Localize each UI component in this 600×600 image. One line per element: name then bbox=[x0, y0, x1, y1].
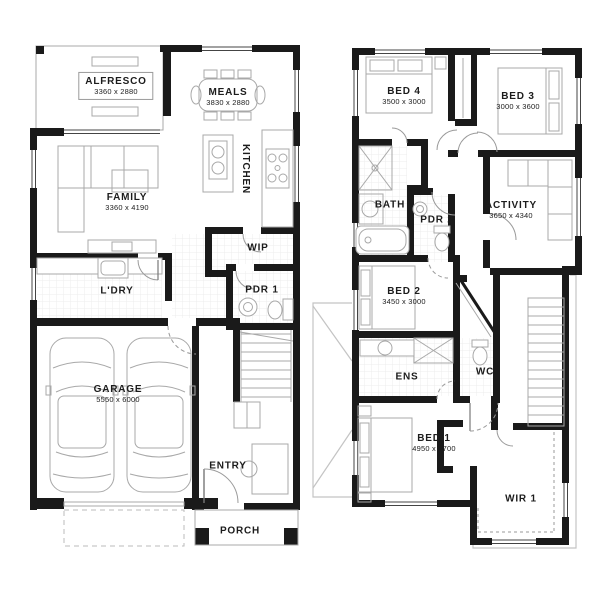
room-name-activity: ACTIVITY bbox=[485, 200, 537, 212]
room-dims-activity: 3650 x 4340 bbox=[485, 211, 537, 220]
room-label-wc: WC bbox=[476, 366, 494, 378]
room-label-bed3: BED 3 3000 x 3600 bbox=[496, 91, 540, 111]
room-label-garage: GARAGE 5550 x 6000 bbox=[94, 384, 143, 404]
room-name-kitchen: KITCHEN bbox=[239, 144, 251, 194]
room-name-wip: WIP bbox=[247, 242, 268, 254]
room-dims-bed1: 4950 x 3700 bbox=[412, 444, 456, 453]
room-dims-family: 3360 x 4190 bbox=[105, 203, 149, 212]
room-dims-bed3: 3000 x 3600 bbox=[496, 102, 540, 111]
room-name-wir1: WIR 1 bbox=[505, 493, 537, 505]
garage-cars bbox=[46, 338, 195, 492]
room-label-wir1: WIR 1 bbox=[505, 493, 537, 505]
room-name-ens: ENS bbox=[396, 371, 419, 383]
room-name-bed2: BED 2 bbox=[382, 286, 426, 298]
room-label-alfresco: ALFRESCO 3360 x 2880 bbox=[78, 72, 153, 100]
wc-fixtures bbox=[472, 340, 488, 365]
room-dims-garage: 5550 x 6000 bbox=[94, 395, 143, 404]
room-label-family: FAMILY 3360 x 4190 bbox=[105, 192, 149, 212]
room-name-entry: ENTRY bbox=[209, 460, 247, 472]
room-label-kitchen: KITCHEN bbox=[239, 144, 251, 194]
wir1-shelves bbox=[478, 430, 554, 532]
room-name-porch: PORCH bbox=[220, 525, 260, 537]
room-label-pdr2: PDR 2 bbox=[420, 214, 453, 226]
upper-floor-plan bbox=[313, 48, 582, 548]
room-label-ens: ENS bbox=[396, 371, 419, 383]
room-name-pdr1: PDR 1 bbox=[245, 284, 278, 296]
room-label-bath: BATH bbox=[375, 199, 405, 211]
room-name-meals: MEALS bbox=[206, 87, 250, 99]
room-name-bed4: BED 4 bbox=[382, 86, 426, 98]
room-label-bed1: BED 1 4950 x 3700 bbox=[412, 433, 456, 453]
bed1-furniture bbox=[358, 406, 412, 502]
room-name-pdr2: PDR 2 bbox=[420, 214, 453, 226]
upper-stairs bbox=[528, 298, 564, 426]
room-name-wc: WC bbox=[476, 366, 494, 378]
room-label-bed2: BED 2 3450 x 3000 bbox=[382, 286, 426, 306]
room-label-porch: PORCH bbox=[220, 525, 260, 537]
room-label-pdr1: PDR 1 bbox=[245, 284, 278, 296]
room-dims-bed4: 3500 x 3000 bbox=[382, 97, 426, 106]
room-label-bed4: BED 4 3500 x 3000 bbox=[382, 86, 426, 106]
room-dims-meals: 3830 x 2880 bbox=[206, 98, 250, 107]
room-label-entry: ENTRY bbox=[209, 460, 247, 472]
ground-stairs bbox=[234, 330, 293, 428]
room-name-bed3: BED 3 bbox=[496, 91, 540, 103]
room-name-garage: GARAGE bbox=[94, 384, 143, 396]
room-label-ldry: L'DRY bbox=[100, 285, 133, 297]
floorplan-canvas: ALFRESCO 3360 x 2880 MEALS 3830 x 2880 F… bbox=[0, 0, 600, 600]
room-name-alfresco: ALFRESCO bbox=[85, 76, 146, 88]
room-label-wip: WIP bbox=[247, 242, 268, 254]
room-name-bath: BATH bbox=[375, 199, 405, 211]
room-label-meals: MEALS 3830 x 2880 bbox=[206, 87, 250, 107]
room-dims-bed2: 3450 x 3000 bbox=[382, 297, 426, 306]
room-dims-alfresco: 3360 x 2880 bbox=[85, 87, 146, 96]
room-label-activity: ACTIVITY 3650 x 4340 bbox=[485, 200, 537, 220]
room-name-ldry: L'DRY bbox=[100, 285, 133, 297]
room-name-bed1: BED 1 bbox=[412, 433, 456, 445]
room-name-family: FAMILY bbox=[105, 192, 149, 204]
